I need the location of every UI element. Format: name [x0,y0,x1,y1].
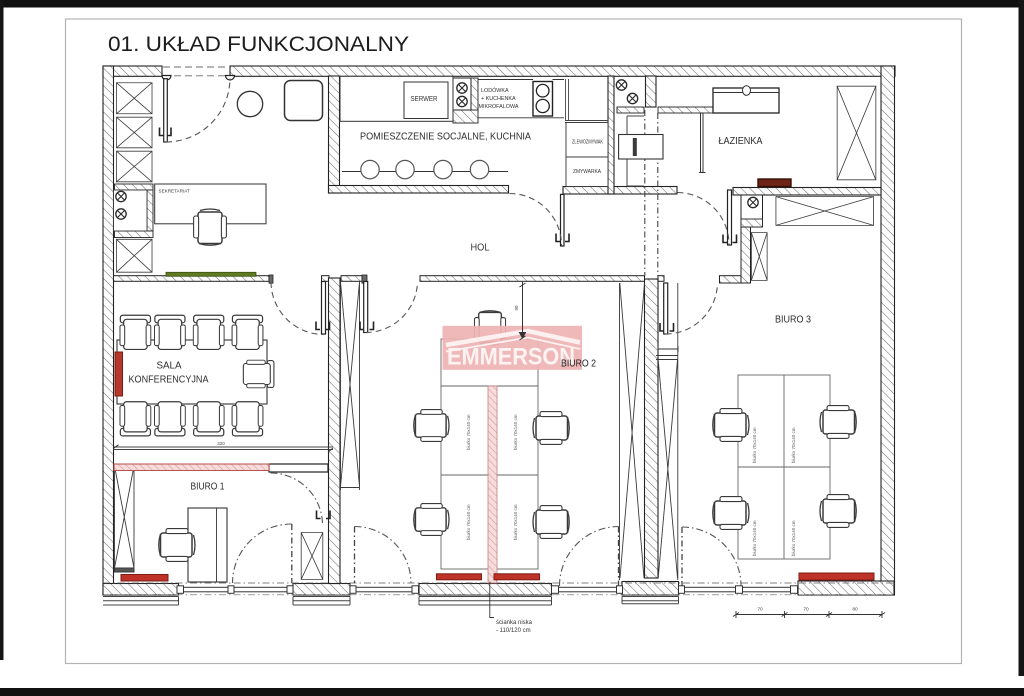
svg-text:01. UKŁAD FUNKCJONALNY: 01. UKŁAD FUNKCJONALNY [108,32,409,56]
svg-text:MIKROFALOWA: MIKROFALOWA [479,104,519,110]
svg-text:biurko 70x140 cm: biurko 70x140 cm [752,520,757,556]
svg-text:BIURO 3: BIURO 3 [775,315,811,326]
svg-text:biurko 70x140 cm: biurko 70x140 cm [466,414,471,450]
svg-text:80: 80 [852,607,858,613]
svg-text:BIURO 1: BIURO 1 [191,482,225,493]
svg-text:SERWER: SERWER [411,96,438,103]
svg-text:ŁAZIENKA: ŁAZIENKA [719,136,763,147]
svg-text:biurko 70x140 cm: biurko 70x140 cm [466,504,471,540]
svg-text:70: 70 [803,607,809,613]
svg-text:POMIESZCZENIE SOCJALNE, KUCHNI: POMIESZCZENIE SOCJALNE, KUCHNIA [360,132,531,143]
svg-text:HOL: HOL [471,242,490,254]
svg-text:KONFERENCYJNA: KONFERENCYJNA [129,375,209,386]
svg-text:- 110/120 cm: - 110/120 cm [496,628,531,634]
svg-text:biurko 70x140 cm: biurko 70x140 cm [791,427,796,463]
svg-text:biurko 70x140 cm: biurko 70x140 cm [513,504,518,540]
svg-text:+ KUCHENKA: + KUCHENKA [481,96,516,102]
svg-text:biurko 70x140 cm: biurko 70x140 cm [752,427,757,463]
svg-text:EMMERSON: EMMERSON [447,344,575,371]
svg-text:ścianka niska: ścianka niska [496,620,533,626]
svg-text:ZLEWOZMYWAK: ZLEWOZMYWAK [572,140,604,146]
svg-text:SEKRETARIAT: SEKRETARIAT [159,189,190,194]
svg-text:biurko 70x140 cm: biurko 70x140 cm [513,414,518,450]
svg-text:90: 90 [514,305,519,311]
svg-text:ZMYWARKA: ZMYWARKA [573,169,602,175]
svg-text:BIURO 2: BIURO 2 [561,358,596,370]
svg-text:70: 70 [757,607,763,613]
svg-text:SALA: SALA [157,361,182,372]
svg-text:biurko 70x140 cm: biurko 70x140 cm [791,520,796,556]
svg-text:320: 320 [217,441,225,446]
svg-text:LODÓWKA: LODÓWKA [481,87,509,94]
